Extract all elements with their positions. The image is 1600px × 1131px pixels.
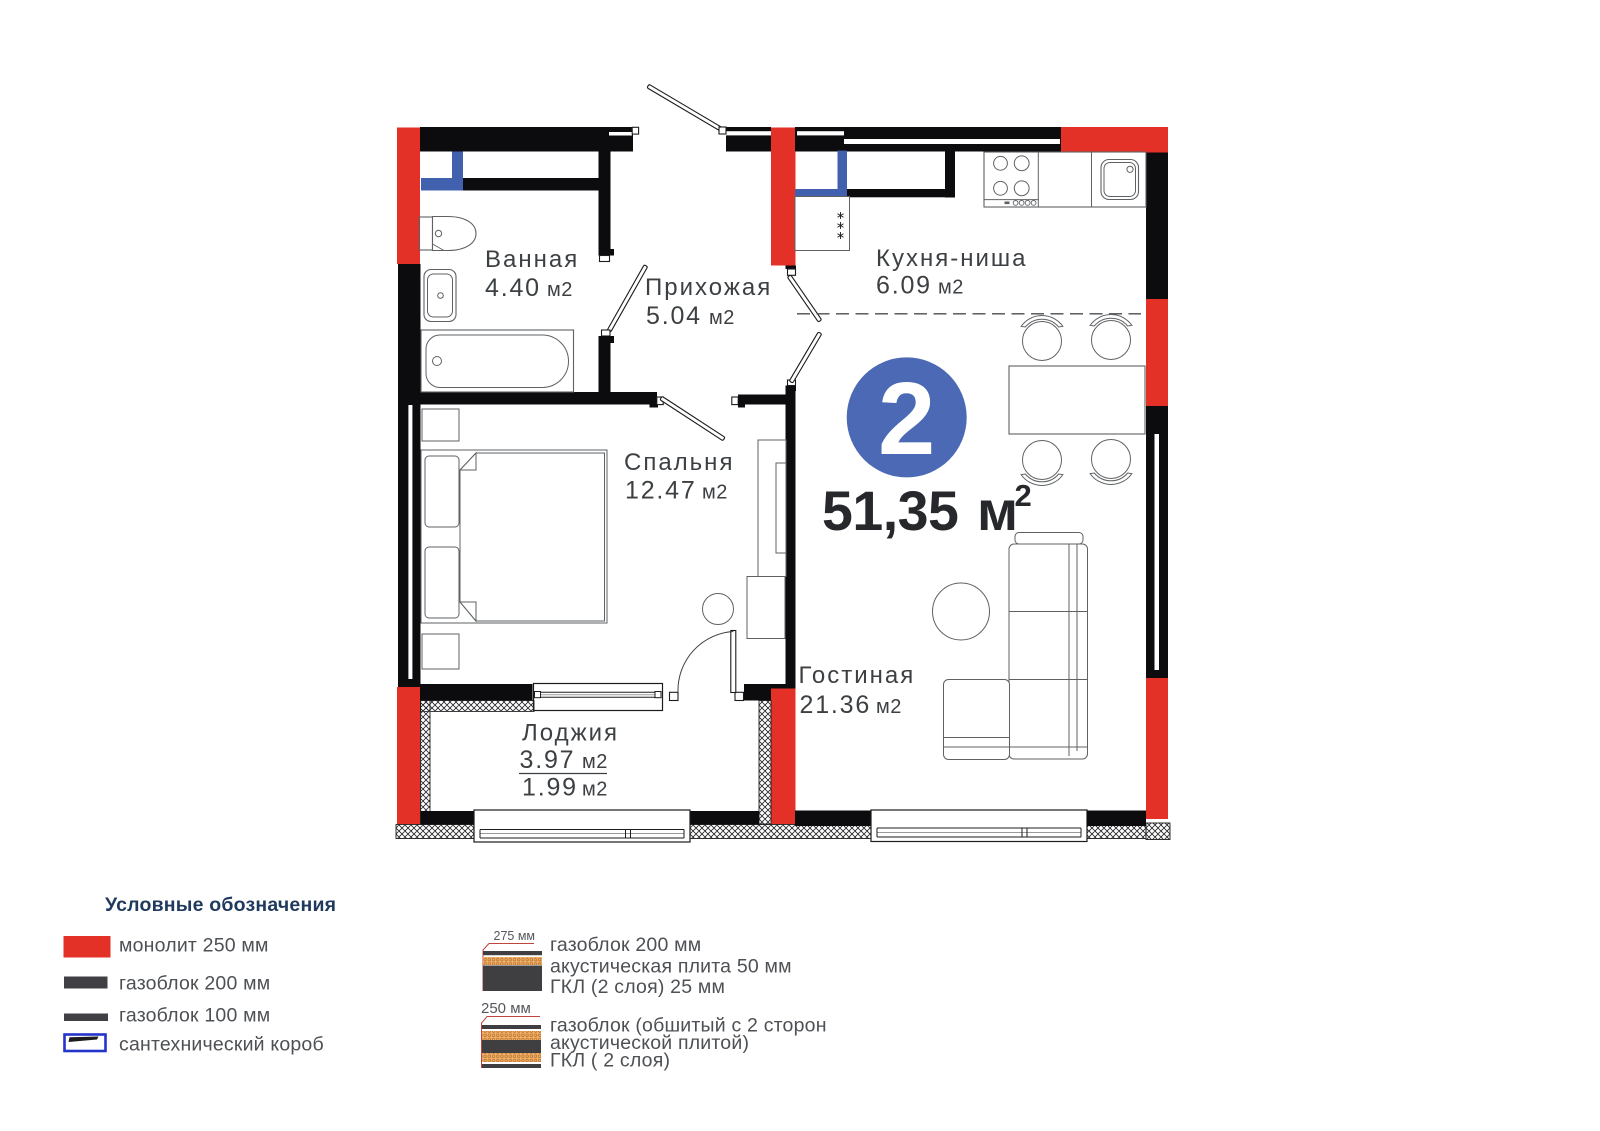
svg-text:ГКЛ (2 слоя) 25 мм: ГКЛ (2 слоя) 25 мм (550, 976, 725, 998)
svg-text:4.40: 4.40 (485, 274, 541, 302)
svg-text:12.47: 12.47 (625, 477, 697, 505)
svg-text:Прихожая: Прихожая (645, 274, 772, 301)
svg-text:Кухня-ниша: Кухня-ниша (876, 245, 1027, 272)
svg-text:51,35: 51,35 (822, 480, 958, 542)
svg-text:м2: м2 (938, 277, 964, 299)
svg-text:м2: м2 (709, 307, 735, 329)
svg-text:сантехнический короб: сантехнический короб (119, 1034, 324, 1056)
svg-text:275 мм: 275 мм (494, 929, 536, 943)
svg-text:м2: м2 (547, 279, 573, 301)
svg-text:Спальня: Спальня (624, 449, 734, 476)
svg-text:Условные обозначения: Условные обозначения (105, 894, 336, 916)
svg-text:ГКЛ ( 2 слоя): ГКЛ ( 2 слоя) (550, 1050, 670, 1072)
svg-text:газоблок 200 мм: газоблок 200 мм (550, 934, 701, 956)
svg-text:Лоджия: Лоджия (522, 720, 619, 747)
svg-text:м2: м2 (582, 751, 608, 773)
svg-text:250 мм: 250 мм (481, 1000, 531, 1017)
svg-text:Гостиная: Гостиная (799, 662, 916, 689)
svg-text:3.97: 3.97 (520, 746, 576, 774)
svg-text:21.36: 21.36 (800, 691, 872, 719)
svg-text:5.04: 5.04 (646, 302, 702, 330)
svg-text:монолит 250 мм: монолит 250 мм (119, 935, 269, 957)
svg-text:м2: м2 (876, 696, 902, 718)
svg-text:2: 2 (1015, 478, 1032, 513)
svg-text:м2: м2 (582, 779, 608, 801)
svg-text:газоблок 200 мм: газоблок 200 мм (119, 973, 270, 995)
svg-text:газоблок 100 мм: газоблок 100 мм (119, 1005, 270, 1027)
svg-text:м: м (977, 480, 1018, 542)
svg-text:м2: м2 (702, 482, 728, 504)
svg-text:акустическая плита 50 мм: акустическая плита 50 мм (550, 956, 792, 978)
svg-text:Ванная: Ванная (485, 246, 579, 273)
svg-text:1.99: 1.99 (522, 774, 578, 802)
svg-text:2: 2 (878, 361, 935, 476)
svg-text:6.09: 6.09 (876, 272, 932, 300)
